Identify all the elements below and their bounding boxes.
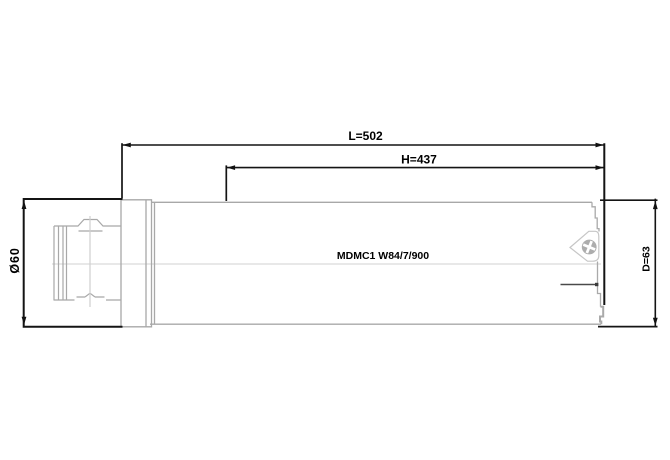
svg-text:D=63: D=63 (641, 246, 653, 272)
svg-text:L=502: L=502 (348, 129, 383, 143)
svg-text:H=437: H=437 (401, 153, 437, 167)
svg-text:MDMC1 W84/7/900: MDMC1 W84/7/900 (337, 250, 429, 262)
svg-text:Ø60: Ø60 (8, 247, 22, 273)
